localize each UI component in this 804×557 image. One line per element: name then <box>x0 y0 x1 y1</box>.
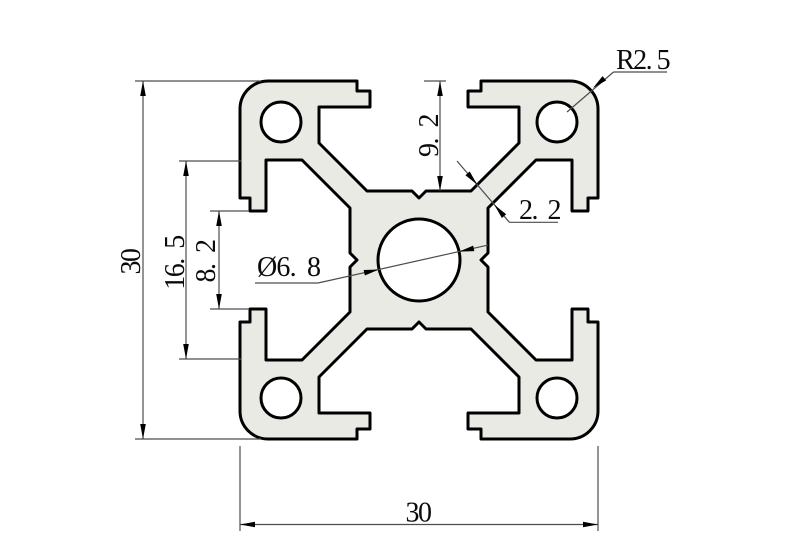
svg-text:9. 2: 9. 2 <box>414 115 445 158</box>
svg-text:2. 2: 2. 2 <box>519 195 561 226</box>
svg-text:30: 30 <box>116 249 147 275</box>
svg-text:R2. 5: R2. 5 <box>616 45 670 76</box>
svg-text:16. 5: 16. 5 <box>160 236 191 290</box>
svg-text:30: 30 <box>406 498 432 529</box>
svg-text:8. 2: 8. 2 <box>191 240 222 283</box>
svg-text:Ø6. 8: Ø6. 8 <box>257 252 320 283</box>
